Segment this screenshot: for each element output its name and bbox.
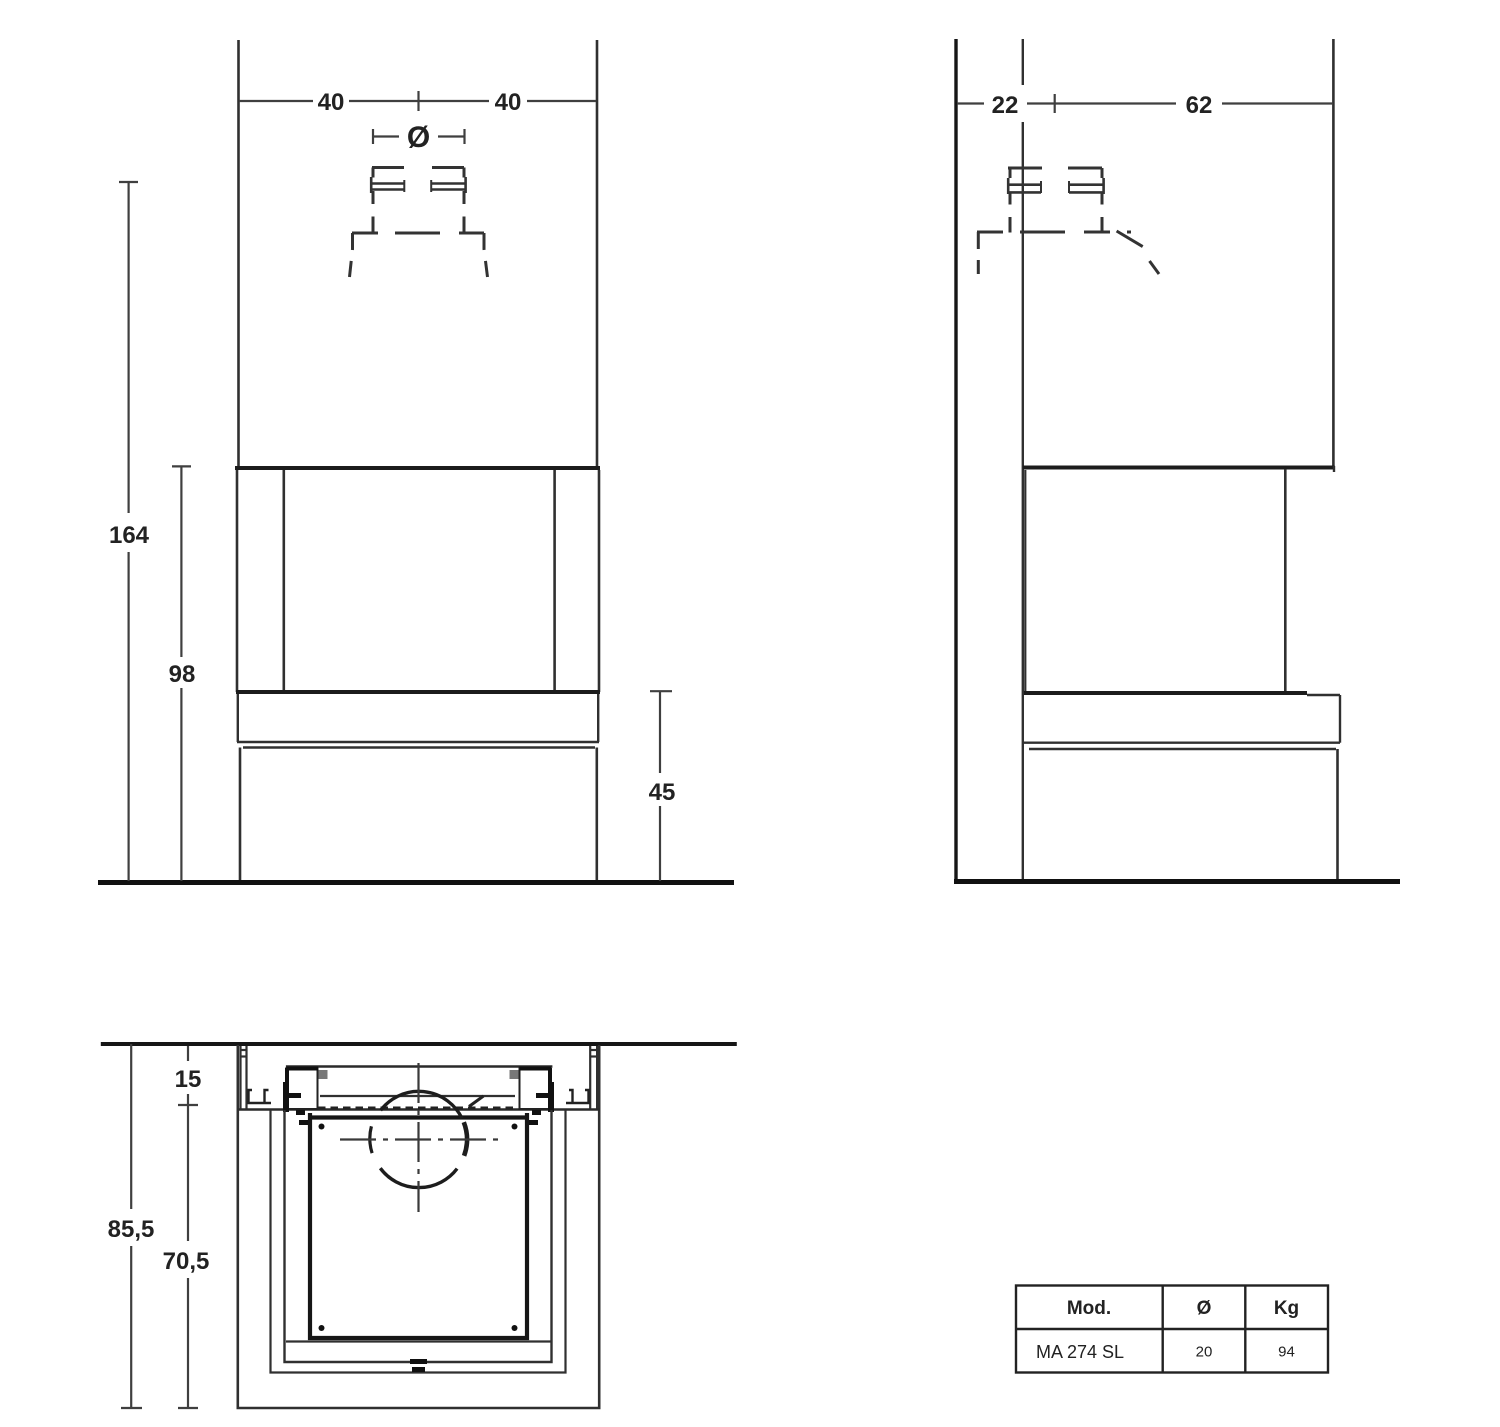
- svg-text:94: 94: [1278, 1344, 1295, 1361]
- svg-text:40: 40: [495, 89, 522, 116]
- svg-text:Mod.: Mod.: [1067, 1298, 1111, 1319]
- svg-text:MA 274 SL: MA 274 SL: [1036, 1342, 1124, 1362]
- svg-text:20: 20: [1196, 1344, 1213, 1361]
- svg-text:Kg: Kg: [1274, 1298, 1299, 1319]
- svg-text:98: 98: [169, 661, 196, 688]
- svg-text:62: 62: [1186, 92, 1213, 119]
- svg-text:70,5: 70,5: [163, 1248, 210, 1275]
- svg-text:45: 45: [649, 779, 676, 806]
- svg-text:22: 22: [992, 92, 1019, 119]
- svg-text:15: 15: [175, 1066, 202, 1093]
- svg-text:Ø: Ø: [1197, 1298, 1212, 1319]
- svg-text:164: 164: [109, 522, 150, 549]
- svg-text:40: 40: [318, 89, 345, 116]
- svg-text:85,5: 85,5: [108, 1216, 155, 1243]
- svg-text:Ø: Ø: [407, 121, 430, 154]
